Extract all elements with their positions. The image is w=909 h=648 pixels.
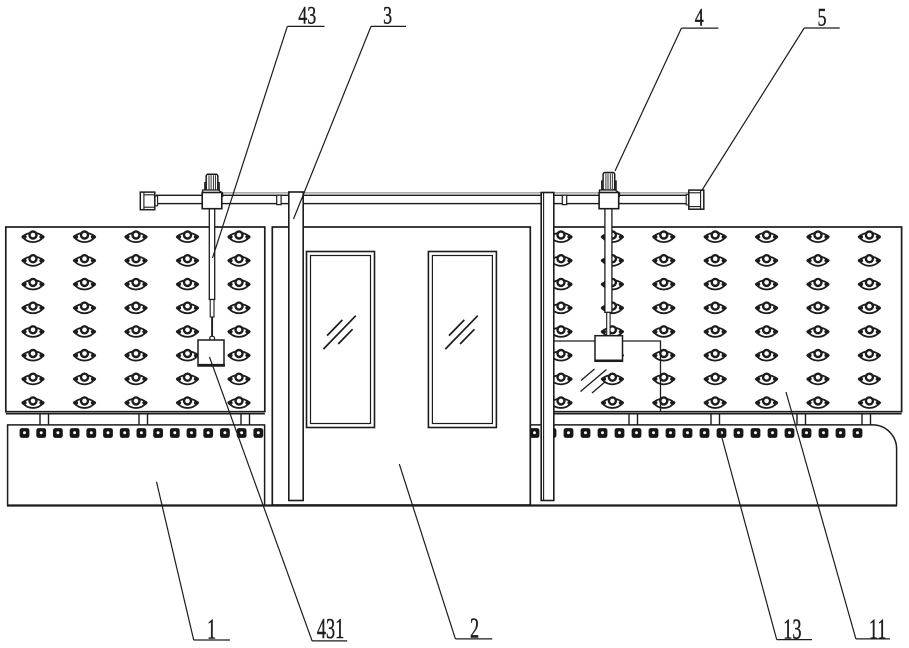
- svg-text:11: 11: [869, 613, 887, 645]
- svg-text:13: 13: [783, 613, 801, 645]
- svg-text:2: 2: [470, 612, 479, 644]
- svg-text:1: 1: [207, 613, 216, 645]
- svg-text:3: 3: [383, 2, 392, 30]
- svg-text:43: 43: [298, 2, 316, 30]
- svg-text:4: 4: [695, 4, 704, 32]
- svg-text:5: 5: [818, 4, 827, 32]
- svg-text:431: 431: [317, 613, 344, 645]
